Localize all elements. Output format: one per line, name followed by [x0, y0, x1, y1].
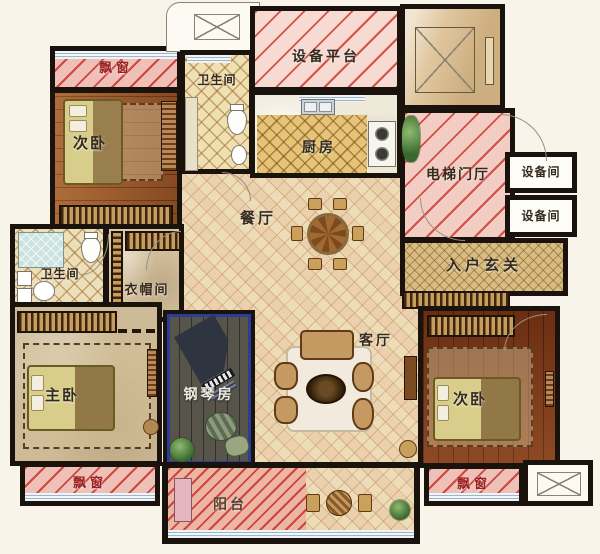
floor-plan: 飘窗 次卧 卫生间 设备平台 厨房 — [0, 0, 600, 554]
balcony-table-icon — [326, 490, 352, 516]
pillow-icon — [69, 120, 87, 132]
bathroom-top-label: 卫生间 — [182, 74, 252, 86]
window-x-icon — [194, 14, 240, 40]
dining-table-icon — [307, 213, 349, 255]
bay-window-top-left-label: 飘窗 — [50, 62, 182, 75]
balcony-bench-icon — [174, 478, 192, 522]
kitchen-label: 厨房 — [284, 141, 354, 155]
dining-chair-icon — [308, 258, 322, 270]
plant-icon — [402, 116, 420, 162]
elevator-hall-label: 电梯门厅 — [404, 168, 512, 182]
window-glass-icon — [25, 493, 155, 501]
master-bedroom — [10, 302, 162, 466]
window-glass-icon — [429, 493, 519, 501]
bathroom-top-window-icon — [187, 55, 231, 63]
console-table-icon — [404, 356, 417, 400]
bay-window-bottom-left-label: 飘窗 — [20, 477, 160, 490]
piano-room-label: 钢琴房 — [167, 388, 251, 402]
balcony-chair-icon — [358, 494, 372, 512]
bench-icon — [147, 349, 157, 397]
wardrobe-icon — [161, 101, 177, 171]
plant-icon — [390, 500, 410, 520]
entry-foyer-label: 入户玄关 — [400, 258, 568, 273]
bedroom-top-left-rug — [121, 103, 163, 181]
bedroom-top-left-label: 次卧 — [62, 136, 118, 151]
sofa-icon — [300, 330, 354, 360]
dining-room-label: 餐厅 — [228, 211, 288, 226]
armchair-icon — [274, 396, 298, 424]
bedroom-top-left — [50, 88, 182, 232]
plant-icon — [170, 438, 194, 462]
equipment-room-2-label: 设备间 — [505, 210, 577, 222]
dining-chair-icon — [308, 198, 322, 210]
bedroom-right-label: 次卧 — [442, 392, 498, 407]
kitchen-sink-icon — [301, 99, 335, 115]
window-glass-icon — [55, 51, 177, 59]
stool-icon — [143, 419, 159, 435]
dining-chair-icon — [291, 226, 303, 241]
bathroom-top — [180, 50, 254, 174]
bath-cabinet — [185, 97, 198, 171]
door-arc — [500, 114, 547, 161]
coffee-table-icon — [306, 374, 346, 404]
armchair-icon — [352, 362, 374, 392]
elevator-shaft — [400, 4, 505, 110]
shower-icon — [18, 232, 64, 268]
washer-icon — [17, 288, 32, 303]
equipment-room-1-label: 设备间 — [505, 166, 577, 178]
sink-icon — [231, 145, 247, 165]
cloakroom-label: 衣帽间 — [112, 284, 182, 297]
sink-icon — [33, 281, 55, 301]
armchair-icon — [352, 398, 374, 430]
stove-icon — [368, 121, 396, 167]
elevator-door-icon — [485, 37, 494, 85]
door-opening-dashes — [146, 329, 155, 333]
armchair-icon — [274, 362, 298, 390]
pillow-icon — [437, 405, 449, 421]
equipment-platform-label: 设备平台 — [250, 50, 402, 64]
cabinet-icon — [545, 371, 554, 407]
dining-chair-icon — [333, 198, 347, 210]
door-opening-dashes — [132, 329, 141, 333]
window-x-icon — [537, 472, 581, 496]
master-bedroom-label: 主卧 — [32, 388, 92, 403]
toilet-icon — [227, 109, 247, 135]
door-opening-dashes — [118, 329, 127, 333]
stool-icon — [399, 440, 417, 458]
bedroom-right-closet-icon — [427, 315, 515, 337]
balcony-label: 阳台 — [198, 498, 262, 512]
dining-chair-icon — [352, 226, 364, 241]
balcony-chair-icon — [306, 494, 320, 512]
master-closet-icon — [17, 311, 117, 333]
bay-window-bottom-right-label: 飘窗 — [424, 478, 524, 491]
elevator-icon — [415, 27, 475, 93]
dining-chair-icon — [333, 258, 347, 270]
balcony-rail-icon — [168, 530, 414, 538]
pillow-icon — [69, 105, 87, 117]
kitchen — [250, 90, 402, 178]
